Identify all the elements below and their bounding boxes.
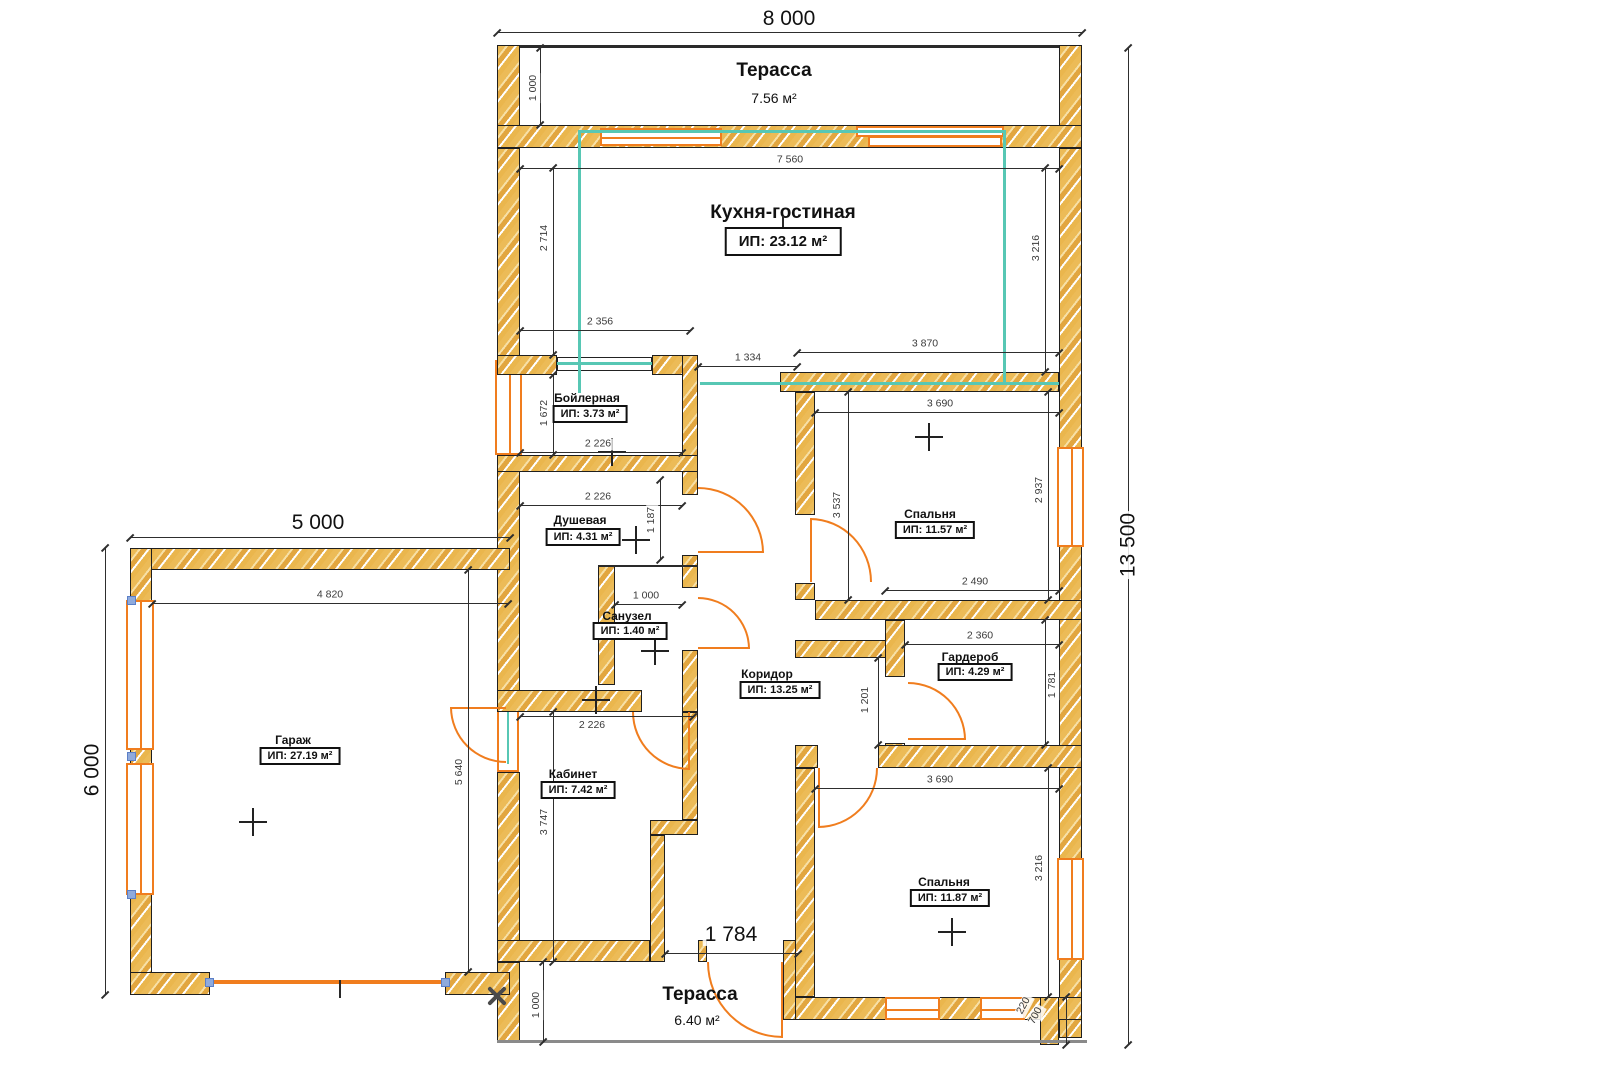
dimension-line <box>660 480 661 560</box>
window-handle <box>127 596 136 605</box>
dimension-label: 2 490 <box>960 576 990 588</box>
room-area-office: ИП: 7.42 м² <box>541 781 616 799</box>
room-label-terrace-top: Терасса <box>736 60 811 82</box>
dimension-line <box>878 658 879 745</box>
dimension-line <box>848 392 849 600</box>
window <box>885 997 940 1020</box>
dimension-line <box>105 548 106 995</box>
selection-highlight <box>700 382 1059 385</box>
window <box>126 763 154 895</box>
dimension-line <box>815 788 1059 789</box>
dimension-label: 2 360 <box>965 630 995 642</box>
dimension-label: 3 216 <box>1031 233 1043 263</box>
dimension-line <box>553 712 554 962</box>
door-arc <box>908 682 966 740</box>
room-area-terrace-bottom: 6.40 м² <box>674 1012 719 1028</box>
dimension-label: 2 226 <box>583 491 613 503</box>
dimension-line <box>520 452 682 453</box>
wall <box>130 972 210 995</box>
wall <box>497 355 557 375</box>
room-label-bedroom2: Спальня <box>918 875 970 889</box>
wall <box>497 148 520 360</box>
center-cross-marker <box>641 637 669 665</box>
wall <box>497 690 642 712</box>
dimension-line <box>885 590 1059 591</box>
dimension-label: 7 560 <box>775 154 805 166</box>
terrace-top-edge <box>497 45 1082 48</box>
wall <box>497 45 520 127</box>
dimension-line <box>615 604 682 605</box>
garage-door <box>212 980 442 984</box>
dimension-line <box>152 603 508 604</box>
window <box>1057 858 1084 960</box>
room-area-wardrobe: ИП: 4.29 м² <box>938 663 1013 681</box>
selection-highlight <box>507 708 509 764</box>
dimension-line <box>1048 392 1049 600</box>
floor-plan-canvas: 8 000 13 500 5 000 6 000 1 000 7 560 2 7… <box>0 0 1597 1080</box>
dimension-label: 3 870 <box>910 338 940 350</box>
center-cross-marker <box>915 423 943 451</box>
room-area-wc: ИП: 1.40 м² <box>593 622 668 640</box>
dimension-line <box>520 330 690 331</box>
wall <box>795 745 818 768</box>
dimension-label: 5 640 <box>454 757 466 787</box>
wall <box>497 455 520 700</box>
door-arc <box>632 712 690 770</box>
dimension-line <box>130 537 510 538</box>
wall <box>1059 45 1082 127</box>
room-label-bedroom1: Спальня <box>904 507 956 521</box>
dimension-label: 6 000 <box>80 742 103 799</box>
dimension-label: 1 000 <box>631 590 661 602</box>
wall <box>497 940 650 962</box>
window <box>126 600 154 750</box>
dimension-label: 2 937 <box>1034 475 1046 505</box>
room-area-hall: ИП: 13.25 м² <box>740 681 821 699</box>
dimension-label: 4 820 <box>315 589 345 601</box>
door-arc <box>450 707 506 763</box>
wall <box>130 548 510 570</box>
room-label-wc: Санузел <box>602 609 651 623</box>
window <box>1057 447 1084 547</box>
wall <box>682 555 698 588</box>
room-area-terrace-top: 7.56 м² <box>751 90 796 106</box>
wall <box>795 768 815 997</box>
window-handle <box>127 890 136 899</box>
wall <box>650 820 698 835</box>
room-area-garage: ИП: 27.19 м² <box>260 747 341 765</box>
window-handle <box>441 978 450 987</box>
room-label-garage: Гараж <box>275 733 311 747</box>
dimension-line <box>1066 997 1067 1045</box>
dimension-label: 1 334 <box>733 352 763 364</box>
wall <box>497 772 520 962</box>
cursor-x-icon <box>486 985 508 1007</box>
dimension-line <box>540 48 541 125</box>
dimension-label: 1 000 <box>531 990 543 1020</box>
dimension-line <box>1048 768 1049 997</box>
window <box>868 136 1002 147</box>
wall <box>795 583 815 600</box>
center-cross-marker <box>582 686 610 714</box>
room-label-wardrobe: Гардероб <box>942 650 999 664</box>
dimension-label: 3 216 <box>1034 853 1046 883</box>
wall <box>815 600 1082 620</box>
dimension-line <box>497 32 1082 33</box>
door-arc <box>698 597 750 649</box>
wc-top-line <box>598 565 698 567</box>
room-area-bedroom1: ИП: 11.57 м² <box>895 521 975 539</box>
selection-highlight <box>578 130 581 393</box>
dimension-label: 1 781 <box>1047 670 1059 700</box>
dimension-label: 13 500 <box>1116 511 1139 579</box>
room-area-kitchen: ИП: 23.12 м² <box>725 227 842 256</box>
dimension-label: 2 226 <box>577 720 607 732</box>
room-area-bedroom2: ИП: 11.87 м² <box>910 889 990 907</box>
dimension-label: 3 690 <box>925 774 955 786</box>
door-arc <box>818 768 878 828</box>
dimension-label: 8 000 <box>761 7 818 30</box>
room-label-hall: Коридор <box>741 667 793 681</box>
dimension-label: 5 000 <box>290 511 347 534</box>
dimension-line <box>797 352 1059 353</box>
dimension-line <box>815 412 1059 413</box>
dimension-label: 1 201 <box>860 685 872 715</box>
dimension-label: 3 537 <box>832 490 844 520</box>
room-label-terrace-bottom: Терасса <box>662 984 737 1006</box>
dimension-label: 1 000 <box>528 73 540 103</box>
room-label-office: Кабинет <box>549 767 598 781</box>
room-label-boiler: Бойлерная <box>554 391 620 405</box>
wall <box>1040 997 1059 1045</box>
room-area-shower: ИП: 4.31 м² <box>546 528 621 546</box>
dimension-label: 2 226 <box>583 438 613 450</box>
room-area-boiler: ИП: 3.73 м² <box>553 405 628 423</box>
dimension-label: 3 747 <box>539 807 551 837</box>
dimension-line <box>698 366 797 367</box>
center-cross-marker <box>938 918 966 946</box>
wall <box>795 392 815 515</box>
dimension-label: 1 672 <box>539 398 551 428</box>
dimension-label: 3 690 <box>925 398 955 410</box>
dimension-line <box>905 644 1059 645</box>
door-arc <box>810 518 872 582</box>
dimension-line <box>553 168 554 355</box>
dimension-line <box>665 953 798 954</box>
wall <box>682 355 698 495</box>
center-cross-marker <box>239 808 267 836</box>
dimension-label: 2 356 <box>585 316 615 328</box>
dimension-label: 1 187 <box>646 505 658 535</box>
window-handle <box>127 752 136 761</box>
window-handle <box>205 978 214 987</box>
dimension-line <box>468 570 469 972</box>
terrace-bottom-edge <box>497 1040 1087 1043</box>
dimension-label: 2 714 <box>539 223 551 253</box>
door-arc <box>698 487 764 553</box>
dimension-line <box>1045 168 1046 372</box>
selection-highlight <box>578 130 1005 133</box>
wall <box>682 650 698 712</box>
garage-door-tick <box>339 980 341 998</box>
dimension-line <box>543 962 544 1042</box>
selection-highlight <box>557 362 652 365</box>
wall <box>650 835 665 962</box>
room-label-shower: Душевая <box>554 513 607 527</box>
dimension-label: 1 784 <box>703 923 760 946</box>
dimension-line <box>520 716 693 717</box>
dimension-line <box>520 168 1059 169</box>
